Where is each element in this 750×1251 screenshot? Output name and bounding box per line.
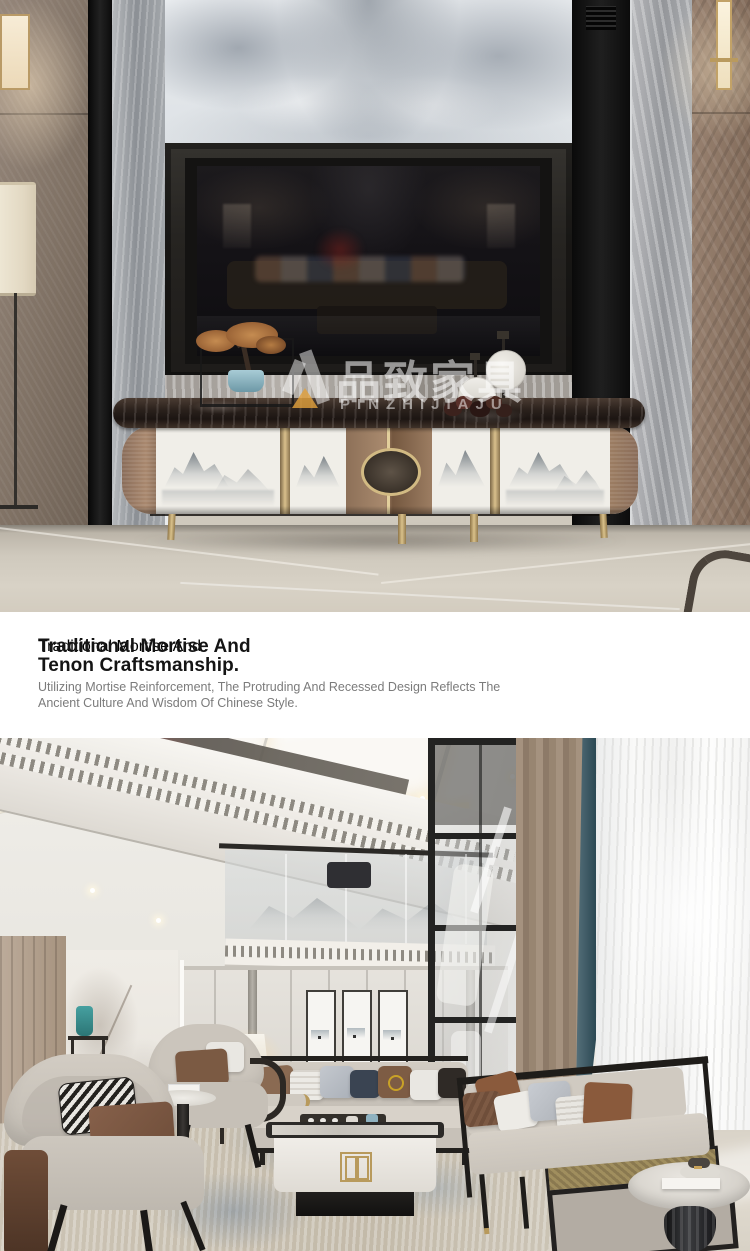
bottom-photo-living-room-scene [0,738,750,1251]
coffee-table [266,1122,446,1218]
cabinet-interior-shadow [435,745,529,825]
tv-cabinet-leg [470,512,478,542]
cabinet-door-art-panel [500,426,610,514]
ink-water-reflection [506,490,604,506]
recessed-spotlight [90,888,95,893]
emblem-inner [357,1156,369,1180]
floor-lamp-pole [14,293,17,508]
ink-boat-dot [353,1035,356,1038]
product-detail-page: 品致家具 PINZHIJIAJU Traditional Mortise And… [0,0,750,1251]
sofa-pillow [378,1066,412,1098]
wall-sconce-right [716,0,732,90]
wall-sconce-left [0,14,30,90]
gold-divider [280,426,290,514]
feature-body-line-1: Utilizing Mortise Reinforcement, The Pro… [38,680,500,696]
ac-vent [586,6,616,30]
gold-emblem [340,1152,372,1182]
ink-landscape-mark [347,1028,365,1038]
sofa-frame-rail [256,1056,468,1061]
brand-watermark-en: PINZHIJIAJU [340,396,509,413]
teal-vase [76,1006,93,1036]
armchair-leg [140,1210,155,1251]
ink-water-reflection [162,490,274,506]
cabinet-bronze-end-left [122,426,156,514]
cabinet-door-art-panel [156,426,280,514]
tv-reflection-lamp-left [223,204,251,248]
oval-medallion [361,448,421,496]
sofa-pillow [350,1070,380,1098]
feature-heading: Traditional Mortise And Tenon Craftsmans… [38,637,251,675]
mural-hill-reflection [245,894,365,934]
cabinet-mullion [435,833,529,839]
gold-divider [490,426,500,514]
bonsai-pot [228,370,264,392]
sofa-leg-gold-foot [484,1228,490,1234]
plate-gold-accent [694,1166,702,1169]
pillow-ring-motif [388,1075,404,1091]
ink-mountain [436,450,488,492]
tv-cabinet-leg [167,512,175,540]
glass-joint [405,854,407,944]
wall-mounted-unit [327,862,371,888]
cabinet-bottom-shade [122,506,638,514]
cabinet-mullion [435,1017,529,1023]
brand-watermark-logo [284,350,334,412]
bonsai-foliage [256,336,286,354]
ink-boat-dot [318,1036,321,1039]
top-photo-tv-cabinet-scene: 品致家具 PINZHIJIAJU [0,0,750,612]
round-side-table [628,1162,750,1251]
cabinet-door-art-panel [290,426,346,514]
coffee-table-plinth [296,1192,414,1216]
logo-triangle [292,388,318,408]
recessed-spotlight [156,918,161,923]
tv-cabinet-body [122,426,638,514]
sofa-pillow [320,1066,354,1098]
glass-joint [285,854,287,944]
armchair-front [0,1054,224,1251]
coffee-table-body [274,1138,436,1192]
tv-cabinet-leg [398,512,406,544]
ink-mountain [294,456,342,492]
round-table-base [664,1206,716,1251]
emblem-inner [345,1156,357,1180]
wall-recess-strip-left [88,0,112,527]
cabinet-floor-shadow [130,528,630,554]
feature-body-line-2: Ancient Culture And Wisdom Of Chinese St… [38,696,500,712]
cabinet-door-art-panel [432,426,490,514]
tv-reflection-lamp-right [487,204,515,248]
ink-boat-dot [391,1037,394,1040]
tv-reflection-flowers [315,228,365,272]
leather-sling-side [4,1150,48,1251]
sofa-leg [479,1174,489,1230]
feature-heading-line-1: Traditional Mortise And [38,637,251,656]
tv-cabinet-leg [599,510,607,538]
armchair-leg [245,1124,261,1168]
floor-lamp-shade [0,182,36,296]
floor-lamp-base [0,505,38,509]
feature-heading-line-2: Tenon Craftsmanship. [38,656,251,675]
cabinet-bronze-end-right [610,426,638,514]
feature-body: Utilizing Mortise Reinforcement, The Pro… [38,680,500,711]
cabinet-bronze-center-doors [346,426,432,514]
table-book [662,1178,720,1189]
coffee-table-marble [272,1125,438,1135]
fan-ornament-handle [497,331,509,339]
coffee-table-top [266,1122,444,1138]
sconce-bracket [710,58,738,62]
sofa-leg [520,1177,530,1229]
wall-sconce-right-glow [660,0,750,140]
